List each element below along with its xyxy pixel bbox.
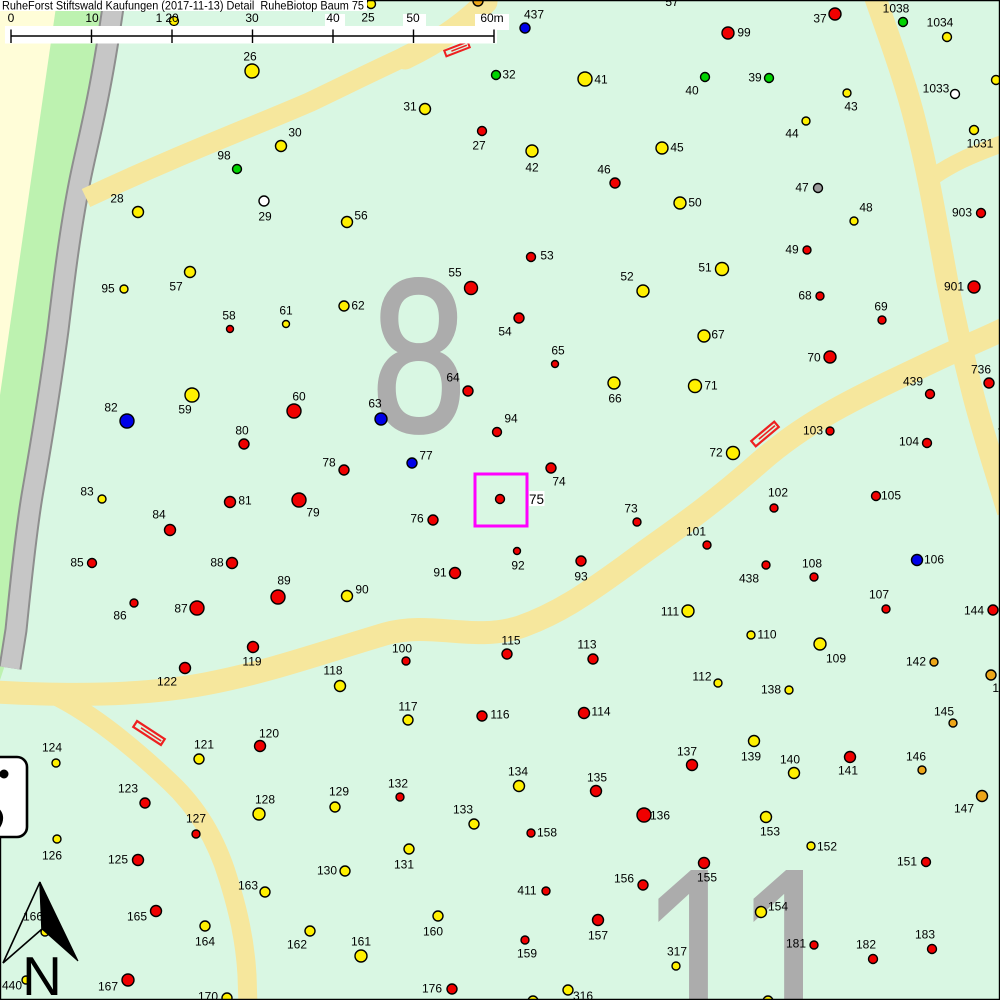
svg-text:58: 58 bbox=[222, 308, 236, 322]
svg-text:74: 74 bbox=[552, 474, 566, 488]
svg-text:51: 51 bbox=[698, 260, 712, 274]
svg-text:146: 146 bbox=[906, 749, 926, 763]
svg-text:82: 82 bbox=[104, 400, 118, 414]
svg-text:112: 112 bbox=[692, 669, 711, 683]
svg-text:181: 181 bbox=[786, 936, 806, 950]
svg-text:114: 114 bbox=[591, 704, 610, 718]
svg-text:163: 163 bbox=[238, 878, 258, 892]
svg-text:100: 100 bbox=[392, 641, 412, 655]
svg-text:126: 126 bbox=[42, 848, 62, 862]
svg-text:103: 103 bbox=[803, 423, 823, 437]
svg-text:903: 903 bbox=[952, 205, 972, 219]
svg-text:81: 81 bbox=[238, 493, 252, 507]
svg-text:115: 115 bbox=[501, 633, 520, 647]
svg-text:104: 104 bbox=[899, 434, 919, 448]
svg-text:411: 411 bbox=[517, 883, 536, 897]
svg-text:145: 145 bbox=[934, 704, 954, 718]
svg-text:136: 136 bbox=[650, 808, 670, 822]
svg-text:61: 61 bbox=[279, 303, 293, 317]
svg-text:49: 49 bbox=[785, 242, 799, 256]
svg-text:37: 37 bbox=[813, 11, 827, 25]
svg-text:39: 39 bbox=[748, 70, 762, 84]
svg-text:1038: 1038 bbox=[883, 1, 910, 15]
svg-text:102: 102 bbox=[768, 485, 788, 499]
svg-text:64: 64 bbox=[446, 370, 460, 384]
svg-text:46: 46 bbox=[597, 162, 611, 176]
svg-text:132: 132 bbox=[388, 776, 408, 790]
svg-text:170: 170 bbox=[198, 989, 218, 1000]
svg-text:123: 123 bbox=[118, 781, 138, 795]
svg-text:161: 161 bbox=[351, 934, 371, 948]
svg-text:32: 32 bbox=[502, 67, 516, 81]
svg-text:71: 71 bbox=[704, 378, 718, 392]
svg-text:134: 134 bbox=[508, 764, 528, 778]
svg-text:77: 77 bbox=[419, 448, 433, 462]
svg-text:118: 118 bbox=[323, 663, 342, 677]
svg-text:69: 69 bbox=[874, 299, 888, 313]
svg-text:89: 89 bbox=[277, 573, 291, 587]
svg-text:48: 48 bbox=[859, 200, 873, 214]
svg-text:98: 98 bbox=[217, 148, 231, 162]
svg-text:30: 30 bbox=[245, 11, 259, 25]
svg-text:736: 736 bbox=[971, 362, 991, 376]
svg-text:151: 151 bbox=[897, 854, 917, 868]
svg-text:317: 317 bbox=[667, 944, 687, 958]
svg-text:87: 87 bbox=[174, 601, 188, 615]
svg-text:75: 75 bbox=[529, 492, 544, 507]
svg-text:140: 140 bbox=[780, 752, 800, 766]
svg-text:56: 56 bbox=[354, 208, 368, 222]
svg-text:43: 43 bbox=[844, 99, 858, 113]
svg-text:99: 99 bbox=[737, 25, 751, 39]
svg-text:92: 92 bbox=[511, 558, 525, 572]
svg-text:440: 440 bbox=[2, 978, 22, 992]
svg-text:0: 0 bbox=[8, 11, 15, 25]
svg-text:N: N bbox=[22, 945, 62, 1000]
svg-text:60m: 60m bbox=[480, 11, 503, 25]
svg-text:47: 47 bbox=[795, 180, 809, 194]
svg-text:53: 53 bbox=[540, 248, 554, 262]
svg-text:105: 105 bbox=[881, 488, 901, 502]
svg-text:70: 70 bbox=[807, 350, 821, 364]
svg-text:60: 60 bbox=[292, 389, 306, 403]
svg-text:147: 147 bbox=[954, 801, 974, 815]
svg-text:159: 159 bbox=[517, 946, 537, 960]
svg-text:152: 152 bbox=[817, 839, 837, 853]
svg-text:72: 72 bbox=[709, 445, 723, 459]
svg-text:165: 165 bbox=[127, 909, 147, 923]
svg-text:95: 95 bbox=[101, 281, 115, 295]
svg-text:127: 127 bbox=[186, 811, 206, 825]
svg-text:111: 111 bbox=[661, 604, 680, 618]
svg-text:153: 153 bbox=[760, 824, 780, 838]
svg-text:41: 41 bbox=[594, 72, 608, 86]
svg-text:901: 901 bbox=[944, 279, 964, 293]
svg-text:160: 160 bbox=[423, 924, 443, 938]
svg-text:110: 110 bbox=[757, 627, 776, 641]
svg-text:117: 117 bbox=[398, 699, 417, 713]
svg-text:1: 1 bbox=[156, 11, 163, 25]
svg-text:30: 30 bbox=[288, 125, 302, 139]
svg-text:66: 66 bbox=[608, 391, 622, 405]
svg-text:65: 65 bbox=[551, 343, 565, 357]
svg-text:28: 28 bbox=[110, 191, 124, 205]
svg-text:52: 52 bbox=[620, 269, 634, 283]
svg-text:438: 438 bbox=[739, 571, 759, 585]
svg-text:437: 437 bbox=[524, 7, 544, 21]
svg-text:26: 26 bbox=[243, 49, 257, 63]
svg-text:29: 29 bbox=[258, 209, 272, 223]
svg-text:85: 85 bbox=[70, 555, 84, 569]
svg-text:44: 44 bbox=[785, 126, 799, 140]
svg-text:162: 162 bbox=[287, 937, 307, 951]
svg-text:57: 57 bbox=[169, 279, 183, 293]
svg-text:83: 83 bbox=[80, 484, 94, 498]
svg-text:90: 90 bbox=[355, 582, 369, 596]
svg-text:78: 78 bbox=[322, 455, 336, 469]
svg-text:27: 27 bbox=[472, 138, 486, 152]
svg-text:1031: 1031 bbox=[967, 136, 994, 150]
svg-text:122: 122 bbox=[157, 674, 177, 688]
svg-text:42: 42 bbox=[525, 160, 539, 174]
svg-text:139: 139 bbox=[741, 749, 761, 763]
svg-text:124: 124 bbox=[42, 740, 62, 754]
svg-text:40: 40 bbox=[326, 11, 340, 25]
svg-text:156: 156 bbox=[614, 871, 634, 885]
svg-text:50: 50 bbox=[406, 11, 420, 25]
svg-text:86: 86 bbox=[113, 608, 127, 622]
svg-text:94: 94 bbox=[504, 411, 518, 425]
svg-text:73: 73 bbox=[624, 501, 638, 515]
svg-text:135: 135 bbox=[587, 770, 607, 784]
svg-text:167: 167 bbox=[98, 979, 118, 993]
svg-text:76: 76 bbox=[410, 511, 424, 525]
svg-text:129: 129 bbox=[329, 784, 349, 798]
svg-text:68: 68 bbox=[798, 288, 812, 302]
svg-text:109: 109 bbox=[826, 651, 846, 665]
svg-text:79: 79 bbox=[306, 505, 320, 519]
svg-text:84: 84 bbox=[152, 507, 166, 521]
svg-text:154: 154 bbox=[768, 899, 788, 913]
svg-text:91: 91 bbox=[433, 565, 447, 579]
svg-text:31: 31 bbox=[403, 99, 417, 113]
svg-text:57: 57 bbox=[665, 0, 679, 9]
svg-text:176: 176 bbox=[422, 981, 442, 995]
svg-text:67: 67 bbox=[711, 327, 725, 341]
svg-text:116: 116 bbox=[490, 707, 509, 721]
svg-text:316: 316 bbox=[573, 989, 593, 1000]
svg-text:10: 10 bbox=[85, 11, 99, 25]
svg-text:RuheForst Stiftswald Kaufungen: RuheForst Stiftswald Kaufungen (2017-11-… bbox=[2, 0, 364, 13]
svg-text:55: 55 bbox=[448, 265, 462, 279]
svg-text:133: 133 bbox=[453, 802, 473, 816]
svg-text:113: 113 bbox=[577, 637, 596, 651]
svg-text:141: 141 bbox=[838, 763, 858, 777]
svg-text:54: 54 bbox=[498, 324, 512, 338]
svg-text:1033: 1033 bbox=[923, 81, 950, 95]
svg-text:59: 59 bbox=[178, 402, 192, 416]
svg-text:120: 120 bbox=[259, 726, 279, 740]
svg-text:101: 101 bbox=[686, 524, 706, 538]
svg-text:131: 131 bbox=[394, 857, 414, 871]
svg-text:62: 62 bbox=[351, 298, 365, 312]
svg-text:63: 63 bbox=[368, 396, 382, 410]
svg-text:439: 439 bbox=[903, 374, 923, 388]
svg-text:137: 137 bbox=[677, 744, 697, 758]
svg-text:164: 164 bbox=[195, 934, 215, 948]
svg-text:138: 138 bbox=[761, 682, 781, 696]
svg-text:130: 130 bbox=[317, 863, 337, 877]
svg-text:158: 158 bbox=[537, 825, 557, 839]
svg-text:1034: 1034 bbox=[927, 15, 954, 29]
svg-text:40: 40 bbox=[685, 83, 699, 97]
svg-text:119: 119 bbox=[242, 654, 261, 668]
svg-text:80: 80 bbox=[235, 423, 249, 437]
svg-text:108: 108 bbox=[802, 556, 822, 570]
svg-text:50: 50 bbox=[688, 195, 702, 209]
svg-text:128: 128 bbox=[255, 792, 275, 806]
svg-text:45: 45 bbox=[670, 140, 684, 154]
svg-text:88: 88 bbox=[210, 555, 224, 569]
svg-text:107: 107 bbox=[869, 587, 889, 601]
svg-text:142: 142 bbox=[906, 654, 926, 668]
svg-text:157: 157 bbox=[588, 928, 608, 942]
svg-text:106: 106 bbox=[924, 552, 944, 566]
svg-text:144: 144 bbox=[964, 603, 984, 617]
svg-text:125: 125 bbox=[108, 852, 128, 866]
svg-text:182: 182 bbox=[856, 937, 876, 951]
svg-text:93: 93 bbox=[574, 569, 588, 583]
svg-text:20: 20 bbox=[165, 11, 179, 25]
svg-text:121: 121 bbox=[194, 737, 214, 751]
svg-text:155: 155 bbox=[697, 870, 717, 884]
svg-text:183: 183 bbox=[915, 927, 935, 941]
